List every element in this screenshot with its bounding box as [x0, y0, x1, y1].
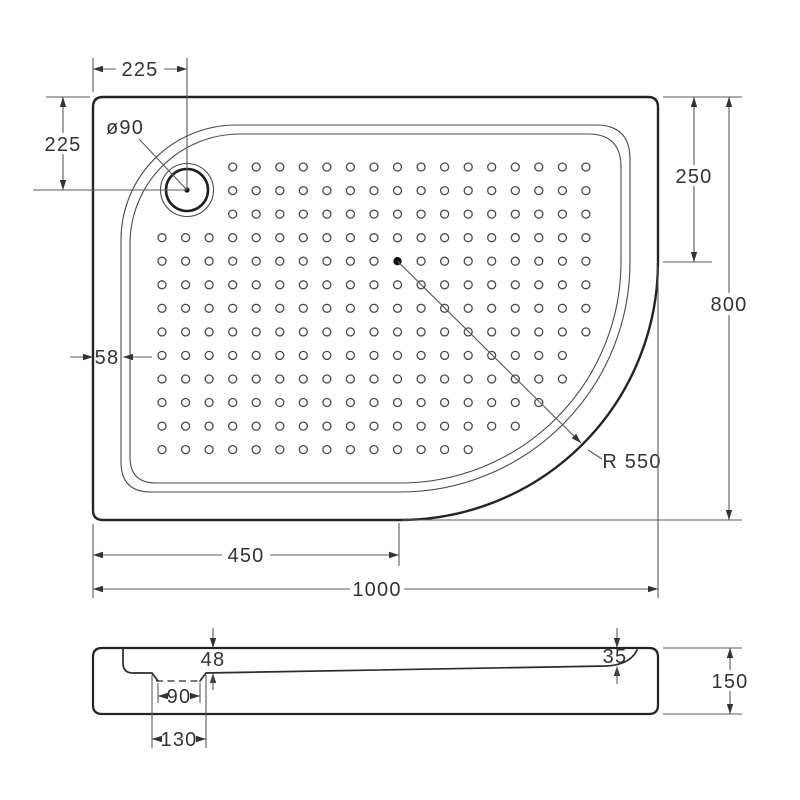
- anti-slip-dot: [417, 351, 425, 359]
- anti-slip-dot: [417, 210, 425, 218]
- dim-label: 35: [603, 646, 628, 668]
- anti-slip-dot: [441, 399, 449, 407]
- anti-slip-dot: [535, 234, 543, 242]
- anti-slip-dot: [182, 446, 190, 454]
- anti-slip-dot: [252, 422, 260, 430]
- anti-slip-dot: [299, 257, 307, 265]
- anti-slip-dot: [346, 422, 354, 430]
- dim-label: 48: [201, 649, 226, 671]
- anti-slip-dot: [182, 351, 190, 359]
- anti-slip-dot: [582, 234, 590, 242]
- anti-slip-dot: [535, 210, 543, 218]
- anti-slip-dot: [182, 304, 190, 312]
- anti-slip-dot: [252, 187, 260, 195]
- anti-slip-dot: [417, 446, 425, 454]
- anti-slip-dot: [582, 257, 590, 265]
- anti-slip-dot: [323, 328, 331, 336]
- anti-slip-dot: [370, 304, 378, 312]
- anti-slip-dot: [229, 163, 237, 171]
- arrowhead-up: [691, 97, 697, 107]
- anti-slip-dot: [441, 281, 449, 289]
- anti-slip-dot: [276, 328, 284, 336]
- anti-slip-dot: [535, 351, 543, 359]
- anti-slip-dot: [511, 210, 519, 218]
- anti-slip-dot: [299, 422, 307, 430]
- anti-slip-dot: [346, 234, 354, 242]
- anti-slip-dot: [511, 257, 519, 265]
- anti-slip-dot: [394, 422, 402, 430]
- anti-slip-dot: [582, 328, 590, 336]
- anti-slip-dot: [464, 304, 472, 312]
- anti-slip-dot: [323, 422, 331, 430]
- anti-slip-dot: [535, 257, 543, 265]
- anti-slip-dot: [535, 328, 543, 336]
- anti-slip-dot: [464, 446, 472, 454]
- anti-slip-dot: [158, 257, 166, 265]
- anti-slip-dot: [488, 210, 496, 218]
- anti-slip-dot: [441, 163, 449, 171]
- anti-slip-dot: [182, 257, 190, 265]
- anti-slip-dot: [323, 304, 331, 312]
- anti-slip-dot: [182, 234, 190, 242]
- anti-slip-dot: [417, 304, 425, 312]
- anti-slip-dot: [370, 163, 378, 171]
- anti-slip-dot: [205, 399, 213, 407]
- dim-label: 90: [167, 686, 192, 708]
- anti-slip-dot: [464, 281, 472, 289]
- anti-slip-dot: [558, 257, 566, 265]
- anti-slip-dot: [488, 187, 496, 195]
- dim-label: 225: [45, 134, 82, 156]
- anti-slip-dot: [511, 281, 519, 289]
- anti-slip-dot: [464, 257, 472, 265]
- anti-slip-dot: [158, 281, 166, 289]
- anti-slip-dot: [299, 399, 307, 407]
- anti-slip-dot: [417, 328, 425, 336]
- anti-slip-dot: [394, 446, 402, 454]
- anti-slip-dot: [158, 351, 166, 359]
- anti-slip-dot: [182, 375, 190, 383]
- anti-slip-dot: [464, 163, 472, 171]
- dim-label: 150: [712, 671, 749, 693]
- dim-overall-height: 150: [663, 648, 754, 714]
- anti-slip-dot: [158, 446, 166, 454]
- anti-slip-dot: [276, 422, 284, 430]
- anti-slip-dot: [158, 399, 166, 407]
- anti-slip-dot: [158, 375, 166, 383]
- anti-slip-dot: [252, 281, 260, 289]
- anti-slip-dot: [323, 234, 331, 242]
- anti-slip-dot: [417, 234, 425, 242]
- anti-slip-dot: [346, 351, 354, 359]
- anti-slip-dot: [346, 210, 354, 218]
- anti-slip-dot: [441, 446, 449, 454]
- anti-slip-dot: [346, 257, 354, 265]
- anti-slip-dot: [511, 187, 519, 195]
- anti-slip-dot: [582, 304, 590, 312]
- anti-slip-dot: [205, 422, 213, 430]
- anti-slip-dot: [370, 234, 378, 242]
- anti-slip-dot: [441, 351, 449, 359]
- anti-slip-dot: [158, 234, 166, 242]
- anti-slip-dot: [276, 351, 284, 359]
- anti-slip-dot: [276, 304, 284, 312]
- anti-slip-dot: [488, 375, 496, 383]
- anti-slip-dot: [441, 210, 449, 218]
- anti-slip-dot: [229, 257, 237, 265]
- section-view: 48 35 90: [93, 628, 754, 751]
- anti-slip-dot: [182, 399, 190, 407]
- anti-slip-dot: [511, 234, 519, 242]
- anti-slip-dot: [229, 281, 237, 289]
- anti-slip-dot: [394, 210, 402, 218]
- anti-slip-dot: [346, 446, 354, 454]
- shower-tray-technical-drawing: 225 225 ø90 250: [0, 0, 800, 800]
- radius-leader-tail: [588, 450, 602, 459]
- anti-slip-dot: [205, 351, 213, 359]
- anti-slip-dot: [205, 281, 213, 289]
- anti-slip-dot: [205, 328, 213, 336]
- anti-slip-dot: [276, 210, 284, 218]
- anti-slip-dot: [558, 304, 566, 312]
- arrowhead-left: [93, 66, 103, 72]
- anti-slip-dot: [511, 399, 519, 407]
- anti-slip-dot: [182, 422, 190, 430]
- anti-slip-dot: [346, 304, 354, 312]
- anti-slip-dot: [276, 187, 284, 195]
- anti-slip-dot: [323, 281, 331, 289]
- anti-slip-dot: [464, 375, 472, 383]
- anti-slip-dot: [488, 257, 496, 265]
- anti-slip-dot: [229, 399, 237, 407]
- anti-slip-dot: [252, 446, 260, 454]
- anti-slip-dot: [346, 163, 354, 171]
- anti-slip-dot: [346, 281, 354, 289]
- anti-slip-dot: [252, 351, 260, 359]
- anti-slip-dot: [441, 422, 449, 430]
- anti-slip-dot: [299, 375, 307, 383]
- anti-slip-dot: [464, 210, 472, 218]
- anti-slip-dot: [558, 351, 566, 359]
- anti-slip-dot: [299, 187, 307, 195]
- anti-slip-dot: [417, 422, 425, 430]
- anti-slip-dot: [511, 351, 519, 359]
- anti-slip-dot: [205, 304, 213, 312]
- anti-slip-dot: [182, 328, 190, 336]
- anti-slip-dot: [370, 375, 378, 383]
- anti-slip-dot: [229, 375, 237, 383]
- anti-slip-dot: [323, 446, 331, 454]
- anti-slip-dot: [535, 187, 543, 195]
- anti-slip-dot: [394, 281, 402, 289]
- anti-slip-dot: [394, 187, 402, 195]
- anti-slip-dot: [394, 351, 402, 359]
- dim-label: 130: [161, 729, 198, 751]
- arrowhead-right: [196, 736, 206, 742]
- anti-slip-dot: [464, 422, 472, 430]
- anti-slip-dot: [276, 446, 284, 454]
- anti-slip-dot: [299, 163, 307, 171]
- anti-slip-dot: [464, 351, 472, 359]
- dim-label: 225: [122, 59, 159, 81]
- arrowhead-right: [648, 586, 658, 592]
- anti-slip-dot: [441, 187, 449, 195]
- anti-slip-dot: [394, 234, 402, 242]
- arrowhead-right: [389, 552, 399, 558]
- anti-slip-dot: [299, 328, 307, 336]
- anti-slip-dot: [252, 304, 260, 312]
- dim-label: 450: [228, 545, 265, 567]
- anti-slip-dot: [511, 163, 519, 171]
- arrowhead-down: [60, 180, 66, 190]
- anti-slip-dot: [158, 304, 166, 312]
- dim-right-straight-edge: 250: [663, 97, 742, 262]
- dim-label: R 550: [602, 451, 661, 473]
- anti-slip-dot: [229, 446, 237, 454]
- anti-slip-dot: [558, 375, 566, 383]
- anti-slip-dot: [488, 304, 496, 312]
- anti-slip-dot: [370, 399, 378, 407]
- anti-slip-dot: [323, 163, 331, 171]
- anti-slip-dot: [229, 351, 237, 359]
- anti-slip-dot: [299, 281, 307, 289]
- anti-slip-dot: [370, 210, 378, 218]
- anti-slip-dot: [276, 399, 284, 407]
- arrowhead-down: [210, 638, 216, 648]
- anti-slip-dot: [229, 187, 237, 195]
- arrowhead-up: [726, 97, 732, 107]
- anti-slip-dot: [558, 187, 566, 195]
- anti-slip-dot: [558, 210, 566, 218]
- dim-label: 1000: [352, 579, 401, 601]
- anti-slip-dot: [370, 187, 378, 195]
- anti-slip-dot: [535, 304, 543, 312]
- anti-slip-dot: [346, 375, 354, 383]
- anti-slip-dot: [441, 234, 449, 242]
- arrowhead-down: [727, 704, 733, 714]
- anti-slip-dot: [323, 257, 331, 265]
- anti-slip-dot: [464, 234, 472, 242]
- anti-slip-dot: [323, 187, 331, 195]
- anti-slip-dot: [323, 399, 331, 407]
- anti-slip-dot: [276, 257, 284, 265]
- anti-slip-dot: [441, 328, 449, 336]
- anti-slip-dot: [558, 234, 566, 242]
- anti-slip-dot: [441, 257, 449, 265]
- anti-slip-dot: [511, 328, 519, 336]
- anti-slip-dot: [582, 281, 590, 289]
- anti-slip-dot: [229, 210, 237, 218]
- anti-slip-dot: [417, 399, 425, 407]
- anti-slip-dot: [205, 234, 213, 242]
- anti-slip-dot: [205, 375, 213, 383]
- anti-slip-dot: [394, 399, 402, 407]
- anti-slip-dot: [370, 328, 378, 336]
- anti-slip-dot: [535, 375, 543, 383]
- anti-slip-dot: [276, 375, 284, 383]
- anti-slip-dot: [394, 163, 402, 171]
- anti-slip-dot: [558, 328, 566, 336]
- anti-slip-dot: [488, 281, 496, 289]
- drawing-canvas: 225 225 ø90 250: [0, 0, 800, 800]
- anti-slip-dot: [158, 328, 166, 336]
- anti-slip-dot: [252, 234, 260, 242]
- anti-slip-dot: [299, 351, 307, 359]
- anti-slip-dot: [252, 163, 260, 171]
- anti-slip-dot: [582, 187, 590, 195]
- anti-slip-dot: [229, 422, 237, 430]
- anti-slip-dot: [488, 328, 496, 336]
- anti-slip-dot: [346, 328, 354, 336]
- anti-slip-dot: [417, 163, 425, 171]
- anti-slip-dot: [558, 281, 566, 289]
- anti-slip-dot: [511, 375, 519, 383]
- anti-slip-dot: [323, 375, 331, 383]
- anti-slip-dot: [252, 399, 260, 407]
- anti-slip-dot: [229, 304, 237, 312]
- anti-slip-dot: [488, 163, 496, 171]
- arrowhead-up: [60, 97, 66, 107]
- anti-slip-dot: [535, 399, 543, 407]
- anti-slip-dot: [394, 375, 402, 383]
- top-view: 225 225 ø90 250: [33, 58, 753, 601]
- anti-slip-dot: [182, 281, 190, 289]
- anti-slip-dot: [535, 163, 543, 171]
- anti-slip-dot: [346, 399, 354, 407]
- anti-slip-dot: [370, 422, 378, 430]
- anti-slip-dot: [158, 422, 166, 430]
- anti-slip-dot: [252, 375, 260, 383]
- anti-slip-dot: [417, 257, 425, 265]
- dim-bottom-straight-edge: 450: [93, 523, 399, 567]
- anti-slip-dot: [252, 210, 260, 218]
- anti-slip-dot: [488, 422, 496, 430]
- anti-slip-dot: [276, 281, 284, 289]
- arrowhead-down: [726, 510, 732, 520]
- dim-label: 250: [676, 166, 713, 188]
- anti-slip-dot: [299, 304, 307, 312]
- anti-slip-dot: [370, 257, 378, 265]
- anti-slip-dot: [464, 187, 472, 195]
- anti-slip-dot: [229, 328, 237, 336]
- anti-slip-dot: [394, 304, 402, 312]
- anti-slip-dot: [229, 234, 237, 242]
- anti-slip-dot: [488, 351, 496, 359]
- arrowhead-left: [93, 586, 103, 592]
- arrowhead-right: [83, 354, 93, 360]
- anti-slip-dot: [558, 163, 566, 171]
- anti-slip-dot: [511, 304, 519, 312]
- anti-slip-dot: [346, 187, 354, 195]
- anti-slip-dot: [511, 422, 519, 430]
- arrowhead-down: [691, 252, 697, 262]
- anti-slip-dot: [488, 234, 496, 242]
- arrowhead-left: [93, 552, 103, 558]
- arrowhead-up: [727, 648, 733, 658]
- dim-label: 800: [711, 294, 748, 316]
- anti-slip-dot: [417, 187, 425, 195]
- anti-slip-dot: [582, 210, 590, 218]
- anti-slip-dot: [370, 351, 378, 359]
- anti-slip-dot: [441, 375, 449, 383]
- anti-slip-dot: [488, 399, 496, 407]
- anti-slip-dot: [276, 234, 284, 242]
- anti-slip-dot: [252, 328, 260, 336]
- anti-slip-dot: [370, 446, 378, 454]
- anti-slip-dot: [323, 210, 331, 218]
- anti-slip-dot: [252, 257, 260, 265]
- anti-slip-dot: [535, 281, 543, 289]
- anti-slip-dot: [205, 446, 213, 454]
- anti-slip-dot: [370, 281, 378, 289]
- anti-slip-dot: [323, 351, 331, 359]
- anti-slip-dot: [464, 399, 472, 407]
- anti-slip-dot: [205, 257, 213, 265]
- anti-slip-dot: [394, 328, 402, 336]
- anti-slip-dot: [299, 234, 307, 242]
- anti-slip-dot: [582, 163, 590, 171]
- arrowhead-right: [177, 66, 187, 72]
- anti-slip-dot: [299, 446, 307, 454]
- anti-slip-dot: [299, 210, 307, 218]
- anti-slip-dot: [276, 163, 284, 171]
- dim-label: ø90: [106, 117, 144, 139]
- anti-slip-dot: [417, 375, 425, 383]
- dim-label: 58: [95, 347, 120, 369]
